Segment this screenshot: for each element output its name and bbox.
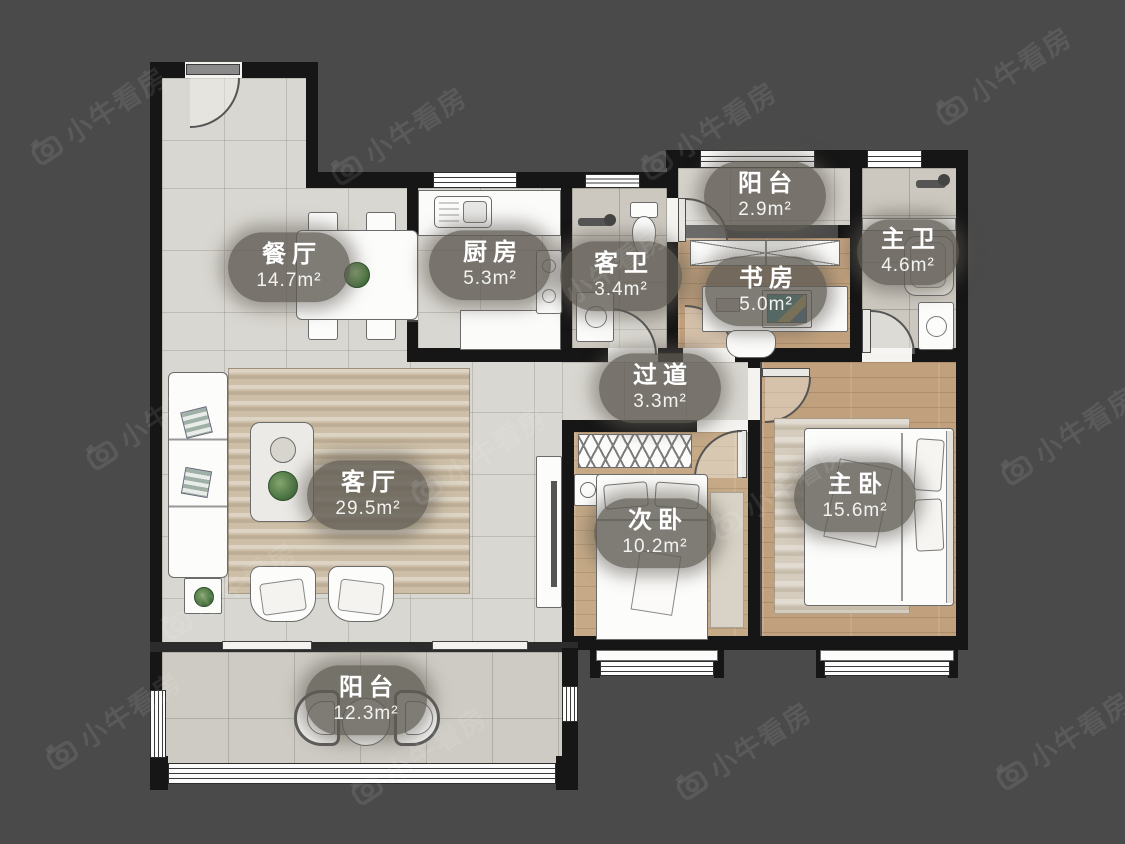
balcony-sliding-door: [432, 641, 528, 650]
tv-icon: [551, 481, 557, 587]
balcony-right-window: [562, 686, 578, 722]
armchair-icon: [328, 566, 394, 622]
room-name: 次卧: [622, 507, 688, 536]
sofa-pillow-icon: [180, 406, 213, 439]
watermark-logo-icon: [995, 448, 1037, 489]
room-name: 主卧: [822, 471, 888, 500]
wall: [150, 62, 162, 690]
plant-icon: [194, 587, 214, 607]
sink-drainer: [439, 202, 459, 222]
burner: [542, 289, 556, 303]
kitchen-window: [433, 172, 517, 188]
room-label-study: 书房 5.0m²: [705, 256, 827, 326]
room-name: 餐厅: [256, 241, 322, 270]
room-label-kitchen: 厨房 5.3m²: [429, 230, 551, 300]
bathroom-sink-icon: [918, 302, 954, 350]
room-label-dining: 餐厅 14.7m²: [228, 232, 350, 302]
headboard: [946, 431, 953, 603]
wall: [556, 756, 578, 790]
bay-window-sill: [820, 650, 954, 661]
entry-door-leaf: [186, 64, 240, 75]
balcony-left-window: [150, 690, 166, 758]
master-bedroom-bay-window: [824, 661, 950, 676]
kitchen-base-cabinet: [460, 310, 561, 350]
watermark-text: 小牛看房: [961, 16, 1080, 112]
sofa-pillow-icon: [181, 467, 212, 498]
wall: [562, 432, 574, 648]
dining-chair-icon: [308, 318, 338, 340]
guest-bath-window: [585, 174, 640, 188]
tv-cabinet-icon: [536, 456, 562, 608]
watermark-text: 小牛看房: [1021, 681, 1125, 777]
sink-basin: [926, 316, 947, 337]
room-name: 客厅: [335, 469, 401, 498]
washer-drum: [580, 482, 596, 498]
second-bedroom-bay-window: [600, 661, 714, 676]
room-label-balcony-top: 阳台 2.9m²: [704, 161, 826, 231]
watermark: 小牛看房: [992, 376, 1125, 494]
room-area: 3.3m²: [627, 391, 693, 414]
sofa-icon: [168, 372, 228, 578]
room-label-master-bath: 主卫 4.6m²: [857, 219, 959, 285]
watermark-logo-icon: [25, 128, 67, 169]
plant-stand: [184, 578, 222, 614]
room-name: 过道: [627, 362, 693, 391]
room-area: 2.9m²: [732, 199, 798, 222]
balcony-top-door-opening: [667, 198, 678, 242]
wall: [150, 756, 168, 790]
tray-icon: [270, 437, 296, 463]
watermark: 小牛看房: [987, 681, 1125, 799]
kitchen-sink-icon: [434, 196, 492, 228]
watermark: 小牛看房: [667, 691, 819, 809]
room-label-hallway: 过道 3.3m²: [599, 353, 721, 423]
room-name: 阳台: [732, 170, 798, 199]
room-area: 5.3m²: [457, 268, 523, 291]
room-area: 12.3m²: [333, 703, 399, 726]
watermark-logo-icon: [40, 733, 82, 774]
watermark-text: 小牛看房: [701, 691, 820, 787]
room-name: 阳台: [333, 674, 399, 703]
room-area: 14.7m²: [256, 270, 322, 293]
watermark-logo-icon: [930, 88, 972, 129]
wall: [562, 648, 578, 686]
wall: [956, 150, 968, 650]
armchair-cushion: [259, 578, 307, 616]
watermark-text: 小牛看房: [1026, 376, 1125, 472]
room-name: 厨房: [457, 239, 523, 268]
armchair-icon: [250, 566, 316, 622]
shower-head-icon: [604, 214, 616, 226]
room-name: 主卫: [875, 226, 941, 255]
pillow-icon: [913, 438, 945, 492]
dining-chair-icon: [366, 318, 396, 340]
second-bedroom-wardrobe-icon: [578, 434, 692, 468]
room-area: 15.6m²: [822, 500, 888, 523]
room-area: 4.6m²: [875, 255, 941, 278]
room-name: 书房: [733, 265, 799, 294]
table-plant-icon: [268, 471, 298, 501]
room-label-living: 客厅 29.5m²: [307, 460, 429, 530]
master-bedroom-door-opening: [748, 368, 760, 420]
room-name: 客卫: [588, 250, 654, 279]
room-label-master-bedroom: 主卧 15.6m²: [794, 462, 916, 532]
master-bedroom-door-leaf: [762, 368, 810, 377]
balcony-top-door-leaf: [678, 198, 686, 242]
room-label-second-bedroom: 次卧 10.2m²: [594, 498, 716, 568]
wall: [838, 225, 862, 238]
room-area: 29.5m²: [335, 498, 401, 521]
room-area: 3.4m²: [588, 279, 654, 302]
watermark-logo-icon: [80, 433, 122, 474]
wall: [306, 62, 318, 188]
room-label-balcony-bottom: 阳台 12.3m²: [305, 665, 427, 735]
balcony-bottom-window: [168, 763, 556, 784]
armchair-cushion: [337, 578, 385, 615]
master-bath-window: [867, 150, 922, 168]
shower-head-icon: [938, 174, 950, 186]
coffee-table-icon: [250, 422, 314, 522]
watermark-logo-icon: [670, 763, 712, 804]
bay-window-sill: [596, 650, 718, 661]
floor-plan: 餐厅 14.7m² 厨房 5.3m² 客卫 3.4m² 阳台 2.9m² 书房 …: [0, 0, 1125, 844]
watermark: 小牛看房: [927, 16, 1079, 134]
sink-bowl: [463, 201, 487, 223]
bedside-rug: [710, 492, 744, 628]
watermark-text: 小牛看房: [356, 76, 475, 172]
desk-chair-icon: [726, 330, 776, 358]
room-area: 10.2m²: [622, 536, 688, 559]
master-bath-door-leaf: [862, 309, 871, 353]
watermark-logo-icon: [990, 753, 1032, 794]
room-label-guest-bath: 客卫 3.4m²: [560, 241, 682, 311]
pillow-icon: [914, 498, 945, 551]
balcony-sliding-door: [222, 641, 312, 650]
room-area: 5.0m²: [733, 294, 799, 317]
